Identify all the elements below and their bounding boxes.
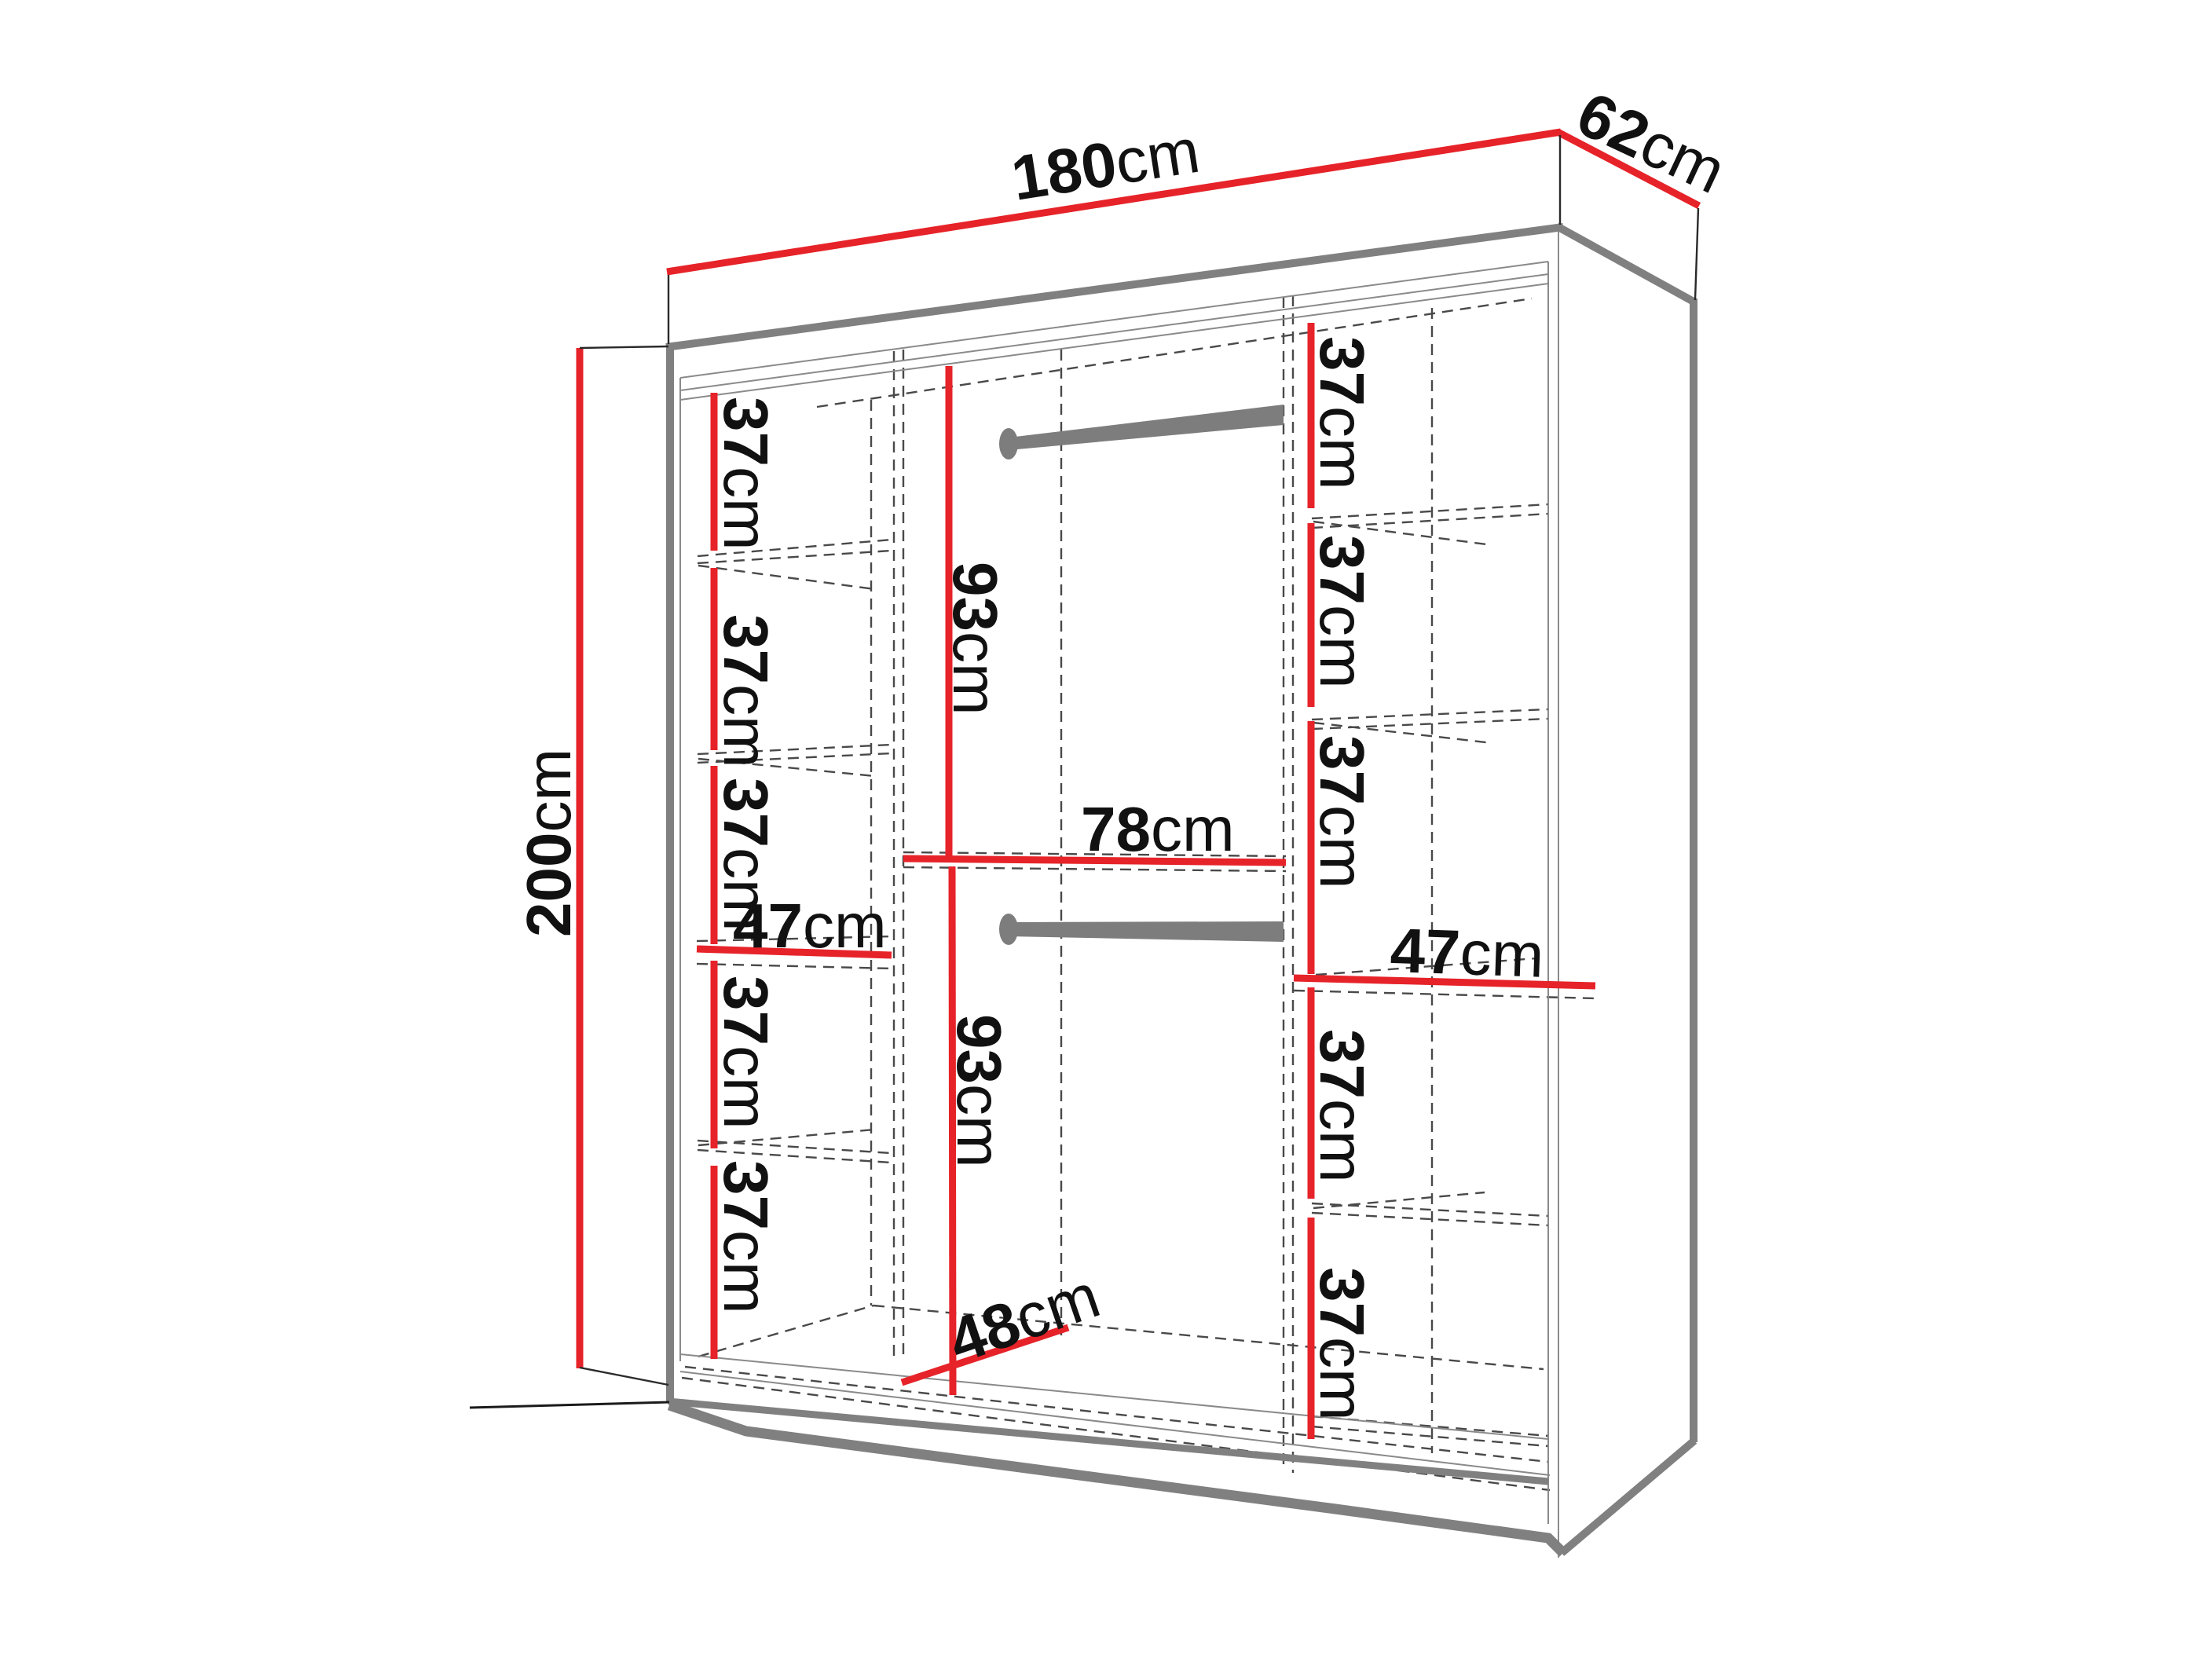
svg-text:200cm: 200cm (514, 749, 584, 937)
svg-text:37cm: 37cm (711, 1160, 781, 1314)
svg-text:78cm: 78cm (1081, 794, 1235, 864)
svg-text:37cm: 37cm (1307, 1267, 1377, 1421)
svg-text:37cm: 37cm (1307, 735, 1377, 889)
svg-text:37cm: 37cm (711, 614, 781, 768)
svg-text:37cm: 37cm (1307, 1029, 1377, 1183)
svg-text:37cm: 37cm (711, 976, 781, 1130)
svg-text:47cm: 47cm (733, 891, 887, 961)
svg-text:93cm: 93cm (944, 1014, 1014, 1168)
svg-text:93cm: 93cm (940, 562, 1010, 716)
svg-text:37cm: 37cm (1307, 535, 1377, 689)
svg-text:47cm: 47cm (1389, 915, 1545, 991)
svg-text:37cm: 37cm (711, 397, 781, 551)
svg-text:37cm: 37cm (1307, 336, 1377, 490)
